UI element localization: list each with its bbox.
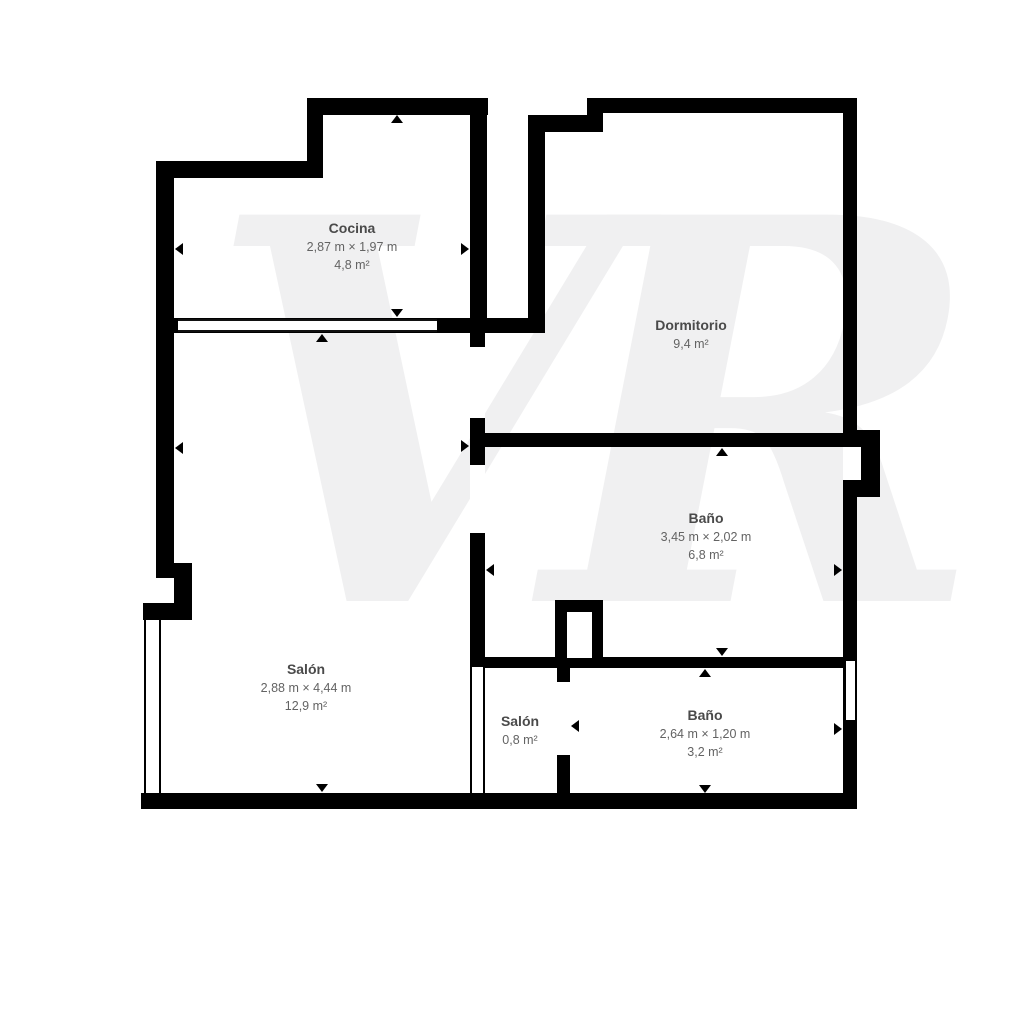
arrow-left-icon: [486, 564, 494, 576]
arrow-down-icon: [391, 309, 403, 317]
room-label-salon-grande: Salón 2,88 m × 4,44 m 12,9 m²: [261, 660, 352, 715]
arrow-up-icon: [316, 334, 328, 342]
floor-plan: VR: [0, 0, 1024, 1024]
arrow-left-icon: [175, 442, 183, 454]
room-label-bano-grande: Baño 3,45 m × 2,02 m 6,8 m²: [661, 509, 752, 564]
wall-bano-bottom: [470, 657, 857, 668]
room-name: Baño: [660, 706, 751, 725]
room-dimensions: 2,88 m × 4,44 m: [261, 679, 352, 697]
door-salon-dormitorio: [470, 347, 485, 418]
room-label-bano-pequeno: Baño 2,64 m × 1,20 m 3,2 m²: [660, 706, 751, 761]
room-name: Salón: [261, 660, 352, 679]
room-area: 0,8 m²: [501, 731, 539, 749]
wall-dormitorio-left: [528, 115, 545, 333]
room-area: 6,8 m²: [661, 546, 752, 564]
wall-left-jog-block: [143, 603, 192, 620]
wall-dormitorio-top-b: [587, 98, 857, 113]
arrow-up-icon: [391, 115, 403, 123]
room-area: 12,9 m²: [261, 697, 352, 715]
arrow-left-icon: [571, 720, 579, 732]
arrow-right-icon: [461, 440, 469, 452]
room-label-dormitorio: Dormitorio 9,4 m²: [655, 316, 727, 353]
window-salon-pequeno: [470, 667, 485, 793]
arrow-down-icon: [716, 648, 728, 656]
arrow-down-icon: [316, 784, 328, 792]
wall-bottom-exterior: [141, 793, 857, 809]
arrow-up-icon: [699, 669, 711, 677]
room-area: 4,8 m²: [307, 256, 398, 274]
room-dimensions: 3,45 m × 2,02 m: [661, 528, 752, 546]
wall-cocina-right: [470, 98, 487, 333]
room-name: Baño: [661, 509, 752, 528]
wall-dormitorio-bano-divider: [470, 433, 880, 447]
room-area: 9,4 m²: [655, 335, 727, 353]
room-area: 3,2 m²: [660, 743, 751, 761]
door-salon-bano: [470, 465, 485, 533]
window-bano-pequeno-right: [844, 661, 857, 720]
room-label-cocina: Cocina 2,87 m × 1,97 m 4,8 m²: [307, 219, 398, 274]
wall-cocina-left-top: [156, 161, 323, 178]
shaft-interior: [567, 612, 592, 658]
wall-left-exterior: [156, 161, 174, 578]
room-dimensions: 2,64 m × 1,20 m: [660, 725, 751, 743]
arrow-right-icon: [834, 564, 842, 576]
wall-cocina-top: [307, 98, 488, 115]
arrow-right-icon: [461, 243, 469, 255]
opening-cocina-salon: [178, 319, 437, 332]
arrow-down-icon: [699, 785, 711, 793]
room-name: Salón: [501, 712, 539, 731]
room-label-salon-pequeno: Salón 0,8 m²: [501, 712, 539, 749]
arrow-right-icon: [834, 723, 842, 735]
room-dimensions: 2,87 m × 1,97 m: [307, 238, 398, 256]
door-bano-pequeno: [557, 682, 570, 755]
window-salon-left: [144, 620, 161, 793]
room-name: Dormitorio: [655, 316, 727, 335]
arrow-left-icon: [175, 243, 183, 255]
right-wall-notch: [843, 447, 861, 480]
arrow-up-icon: [716, 448, 728, 456]
room-name: Cocina: [307, 219, 398, 238]
